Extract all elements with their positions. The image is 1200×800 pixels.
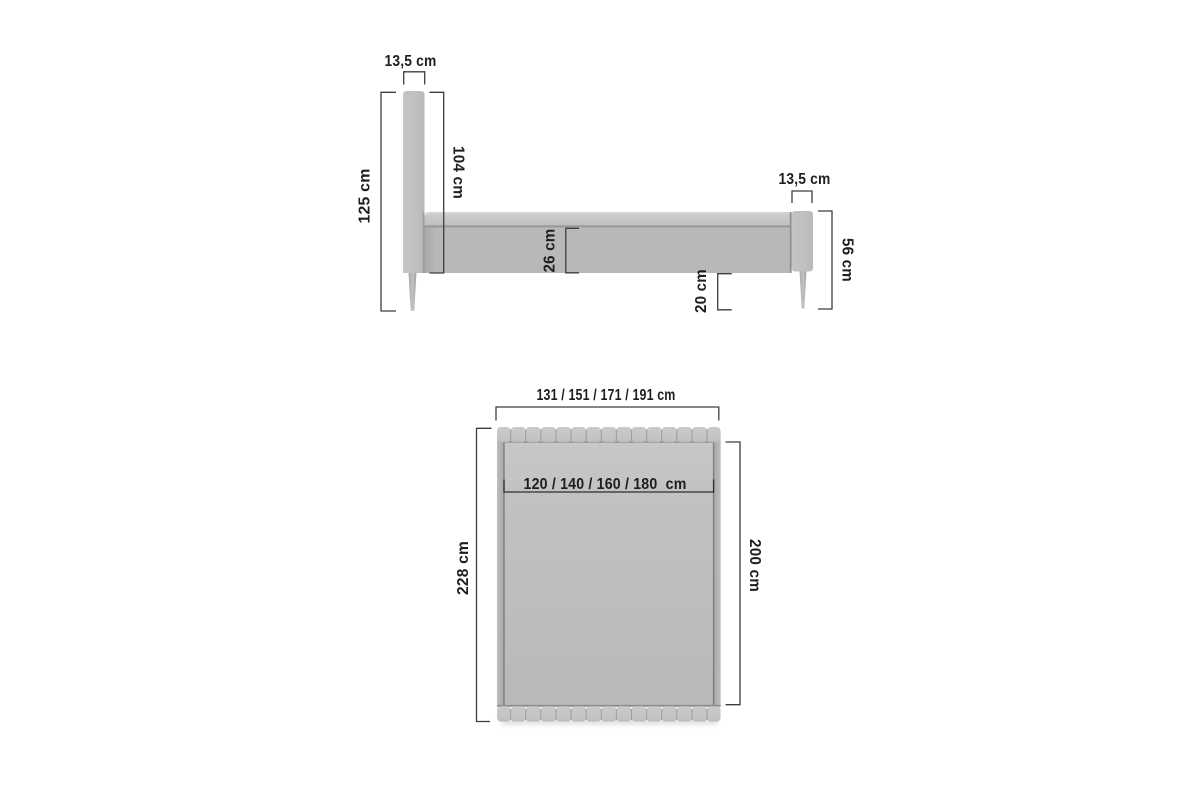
- svg-text:26 cm: 26 cm: [542, 229, 559, 273]
- svg-text:120 / 140 / 160 / 180 cm: 120 / 140 / 160 / 180 cm: [524, 476, 687, 493]
- svg-text:20 cm: 20 cm: [693, 269, 710, 313]
- svg-text:200 cm: 200 cm: [746, 539, 763, 592]
- svg-text:13,5 cm: 13,5 cm: [385, 53, 437, 70]
- svg-text:228 cm: 228 cm: [455, 541, 472, 595]
- svg-text:104 cm: 104 cm: [450, 146, 467, 199]
- svg-text:131 / 151 / 171 / 191 cm: 131 / 151 / 171 / 191 cm: [537, 387, 676, 404]
- svg-text:13,5 cm: 13,5 cm: [779, 171, 831, 188]
- svg-text:125 cm: 125 cm: [357, 169, 374, 224]
- svg-text:56 cm: 56 cm: [839, 238, 856, 282]
